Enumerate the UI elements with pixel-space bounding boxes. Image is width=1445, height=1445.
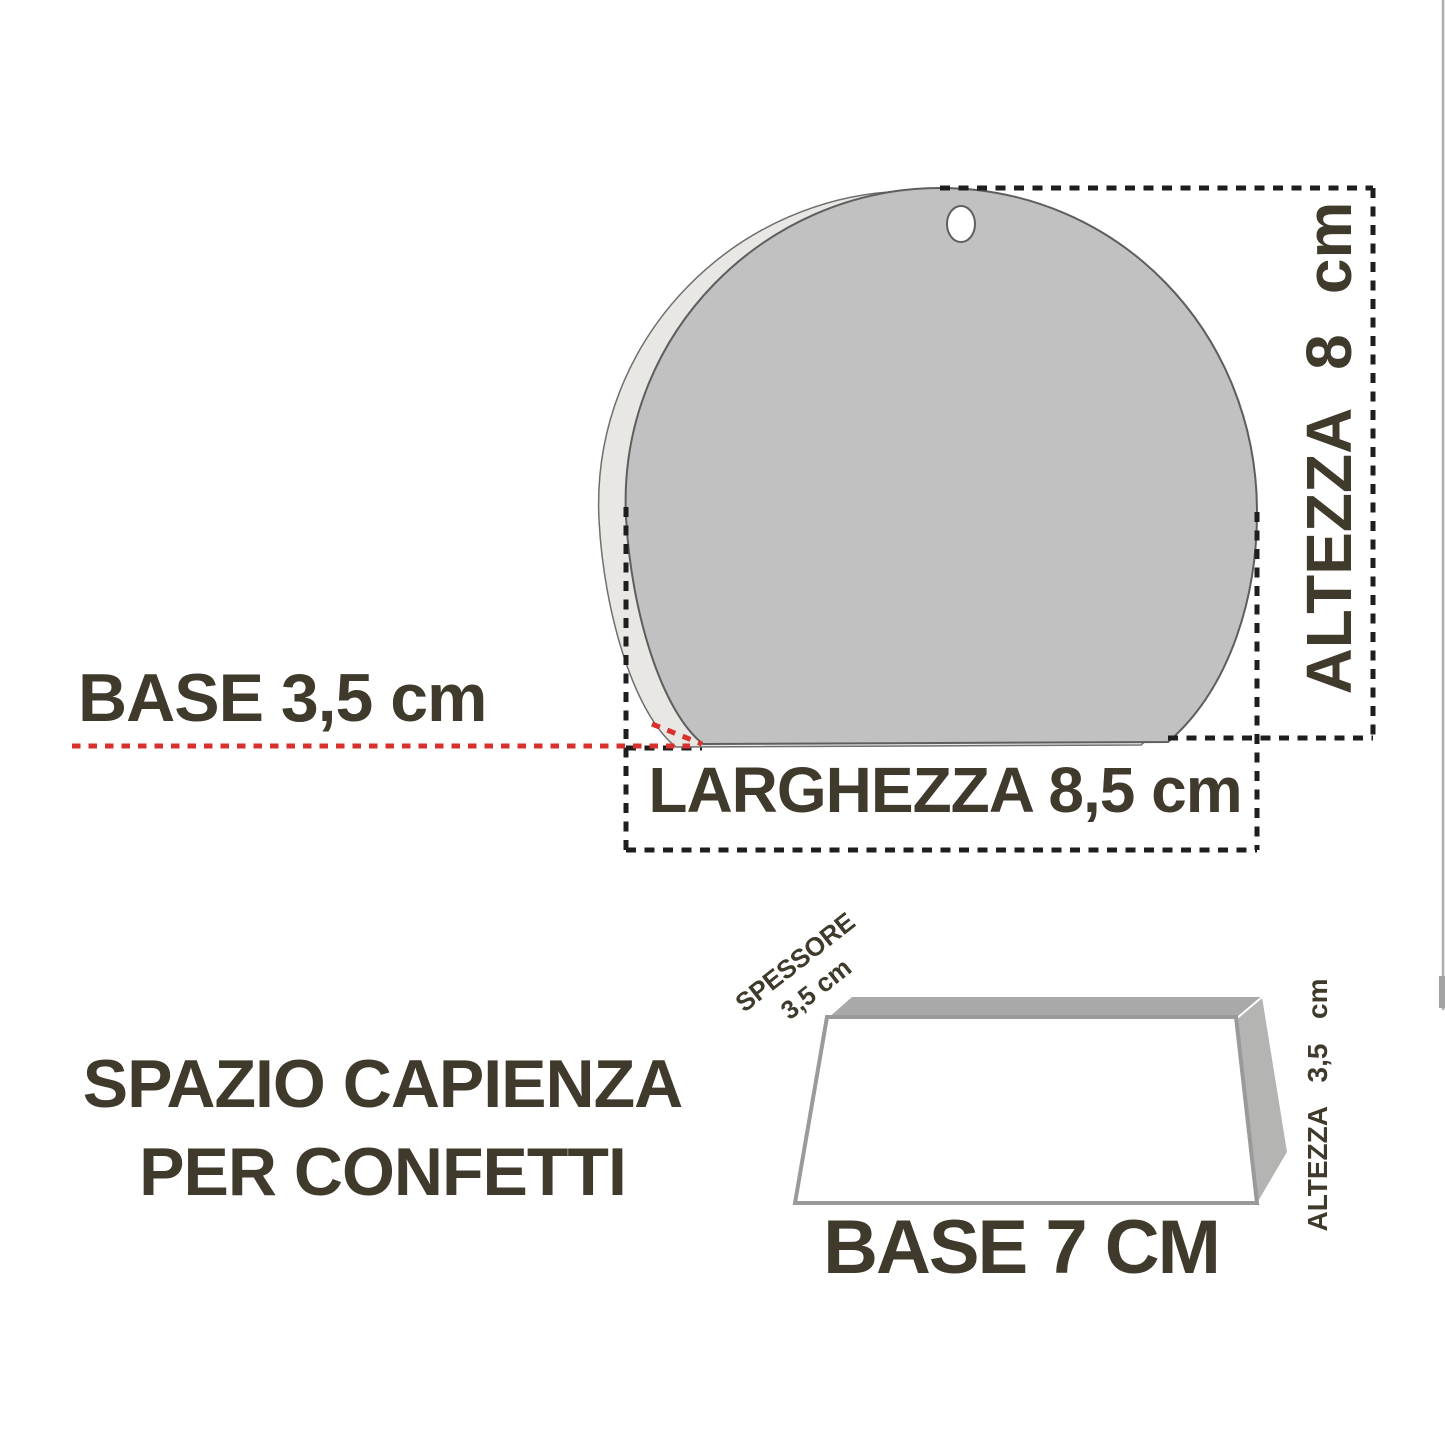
tray-caption-line1: SPAZIO CAPIENZA	[60, 1040, 705, 1128]
dimension-diagram: BASE 3,5 cm LARGHEZZA 8,5 cm ALTEZZA 8 c…	[0, 0, 1445, 1445]
width-dimension-label: LARGHEZZA 8,5 cm	[625, 758, 1265, 822]
tray-caption: SPAZIO CAPIENZA PER CONFETTI	[60, 1040, 705, 1217]
tray-height-dimension-label: ALTEZZA 3,5 cm	[1304, 979, 1332, 1232]
base-depth-dimension-label: BASE 3,5 cm	[78, 664, 487, 732]
tray-caption-line2: PER CONFETTI	[60, 1128, 705, 1216]
tray-base-dimension-label: BASE 7 CM	[823, 1210, 1219, 1286]
tray-front-face	[795, 1017, 1257, 1203]
hang-hole	[947, 206, 975, 242]
height-dimension-label: ALTEZZA 8 cm	[1297, 202, 1361, 695]
